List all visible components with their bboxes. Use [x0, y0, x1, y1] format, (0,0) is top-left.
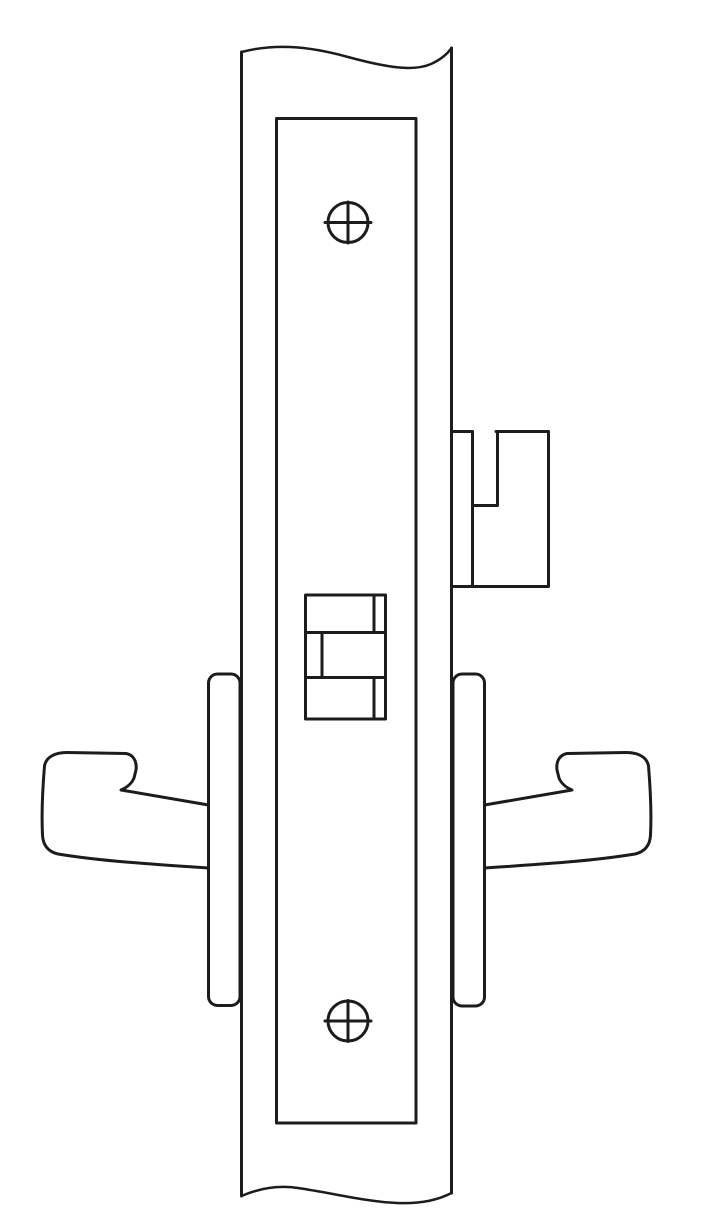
- drawing-background: [0, 0, 704, 1230]
- lock-drawing-canvas: [0, 0, 704, 1230]
- mortise-lock-diagram: [0, 0, 704, 1230]
